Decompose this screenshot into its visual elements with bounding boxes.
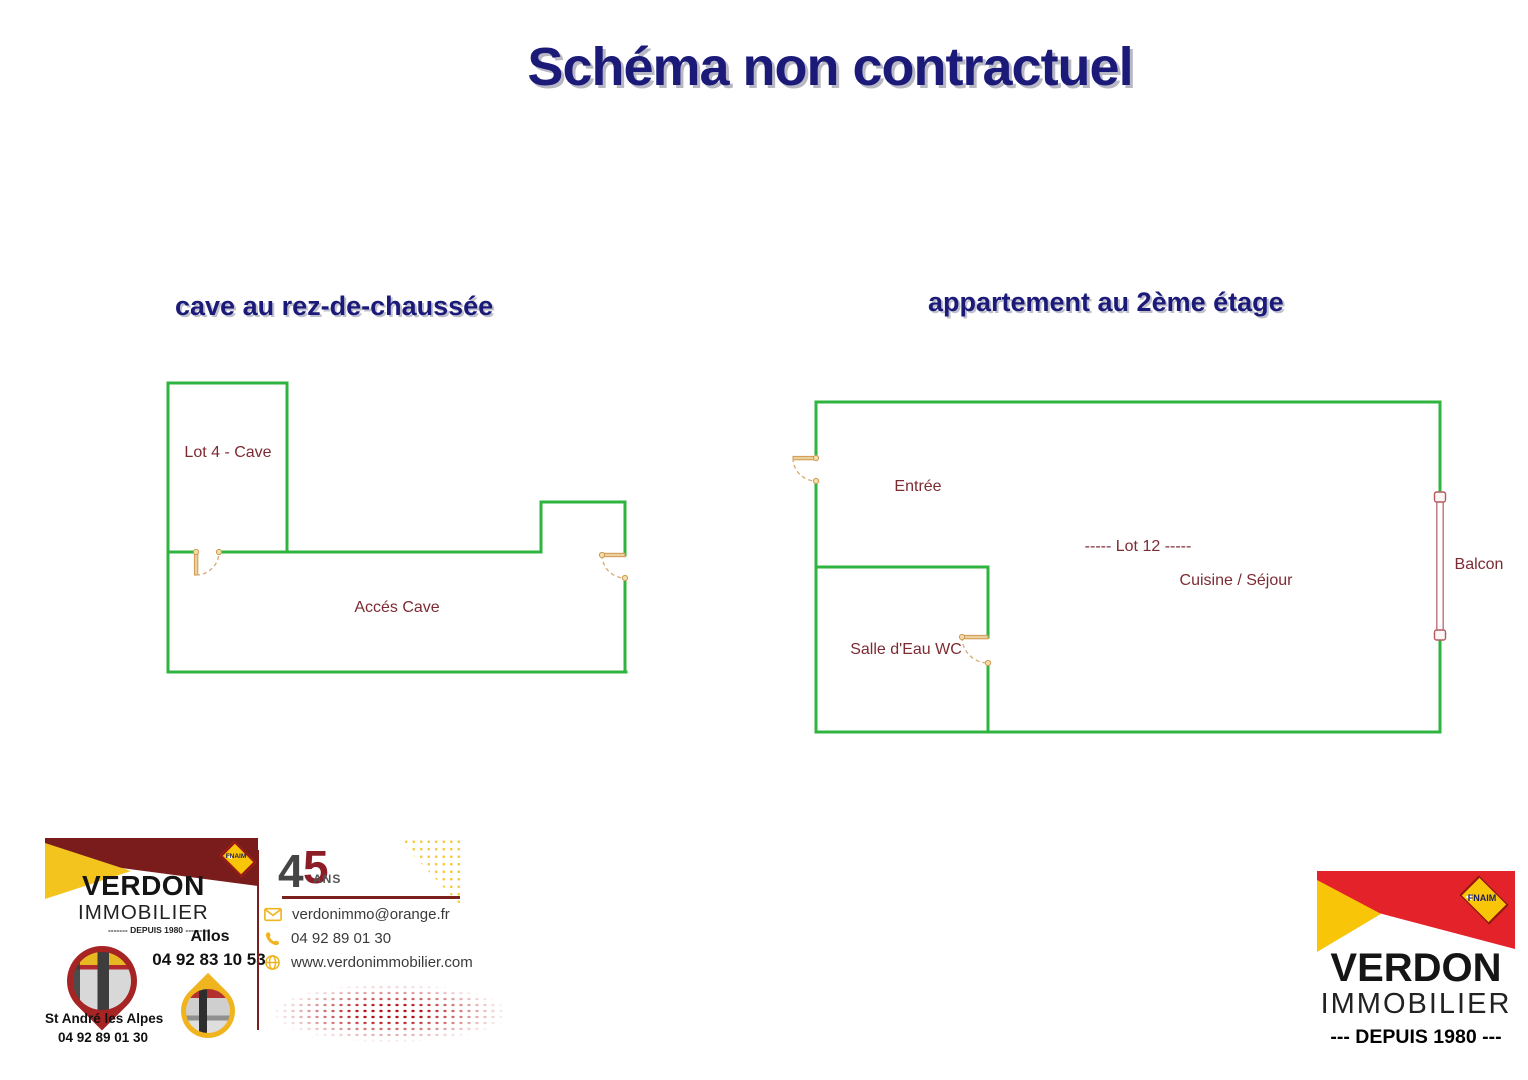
fnaim-logo: FNAIM [215,840,257,874]
office-photo-drop [170,973,246,1049]
fnaim-label: FNAIM [215,853,257,860]
apartment-floorplan: Entrée ----- Lot 12 ----- Cuisine / Séjo… [790,390,1520,750]
fnaim-logo: FNAIM [1453,873,1511,925]
halftone-yellow-decor [380,838,465,910]
agency-brand-name: VERDON [82,870,205,902]
envelope-icon [264,907,282,922]
agency-card: FNAIM VERDON IMMOBILIER ------- DEPUIS 1… [45,838,465,1050]
door-icon [599,552,627,580]
anniversary-digit-4: 4 [278,844,304,898]
contact-website: www.verdonimmobilier.com [291,954,473,971]
room-label-acces-cave: Accés Cave [354,599,439,616]
corner-brand-subname: IMMOBILIER [1317,988,1515,1021]
door-icon [193,549,221,575]
halftone-red-decor [273,984,508,1042]
office-standre-phone: 04 92 89 01 30 [51,1030,155,1045]
phone-icon [264,930,281,947]
room-label-lot12: ----- Lot 12 ----- [1085,538,1192,555]
fnaim-label: FNAIM [1453,893,1511,903]
cave-step-walls [541,502,625,552]
cave-floorplan: Lot 4 - Cave Accés Cave [160,375,640,685]
page-title: Schéma non contractuel [460,36,1200,98]
contact-phone-row: 04 92 89 01 30 [264,930,391,947]
room-label-cuisine-sejour: Cuisine / Séjour [1180,572,1294,589]
cave-lot4-walls [168,383,287,672]
corner-brand-name: VERDON [1317,946,1515,991]
corner-logo: FNAIM VERDON IMMOBILIER --- DEPUIS 1980 … [1317,868,1515,1054]
room-label-entree: Entrée [894,478,941,495]
contact-website-row: www.verdonimmobilier.com [264,954,473,971]
room-label-balcon: Balcon [1455,556,1504,573]
floorplan-page: Schéma non contractuel cave au rez-de-ch… [0,0,1528,1080]
office-standre-city: St André les Alpes [45,1011,157,1026]
storefront-photo [73,952,131,1010]
door-icon [959,634,990,665]
balcony-window [1435,492,1446,640]
room-label-lot4: Lot 4 - Cave [184,444,271,461]
card-divider [257,850,259,1030]
cave-plan-heading: cave au rez-de-chaussée [175,291,493,322]
card-rule [282,896,460,899]
anniversary-ans: ANS [313,872,341,886]
contact-email: verdonimmo@orange.fr [292,906,450,923]
office-allos-phone: 04 92 83 10 53 [149,950,269,970]
apartment-plan-heading: appartement au 2ème étage [928,287,1284,318]
contact-phone: 04 92 89 01 30 [291,930,391,947]
corner-since-line: --- DEPUIS 1980 --- [1317,1026,1515,1049]
agency-brand-subname: IMMOBILIER [78,901,209,925]
office-photo [186,989,230,1033]
door-icon [793,455,819,483]
globe-icon [264,954,281,971]
contact-email-row: verdonimmo@orange.fr [264,906,450,923]
office-allos-city: Allos [160,928,260,946]
room-label-salle-eau-wc: Salle d'Eau WC [850,641,962,658]
